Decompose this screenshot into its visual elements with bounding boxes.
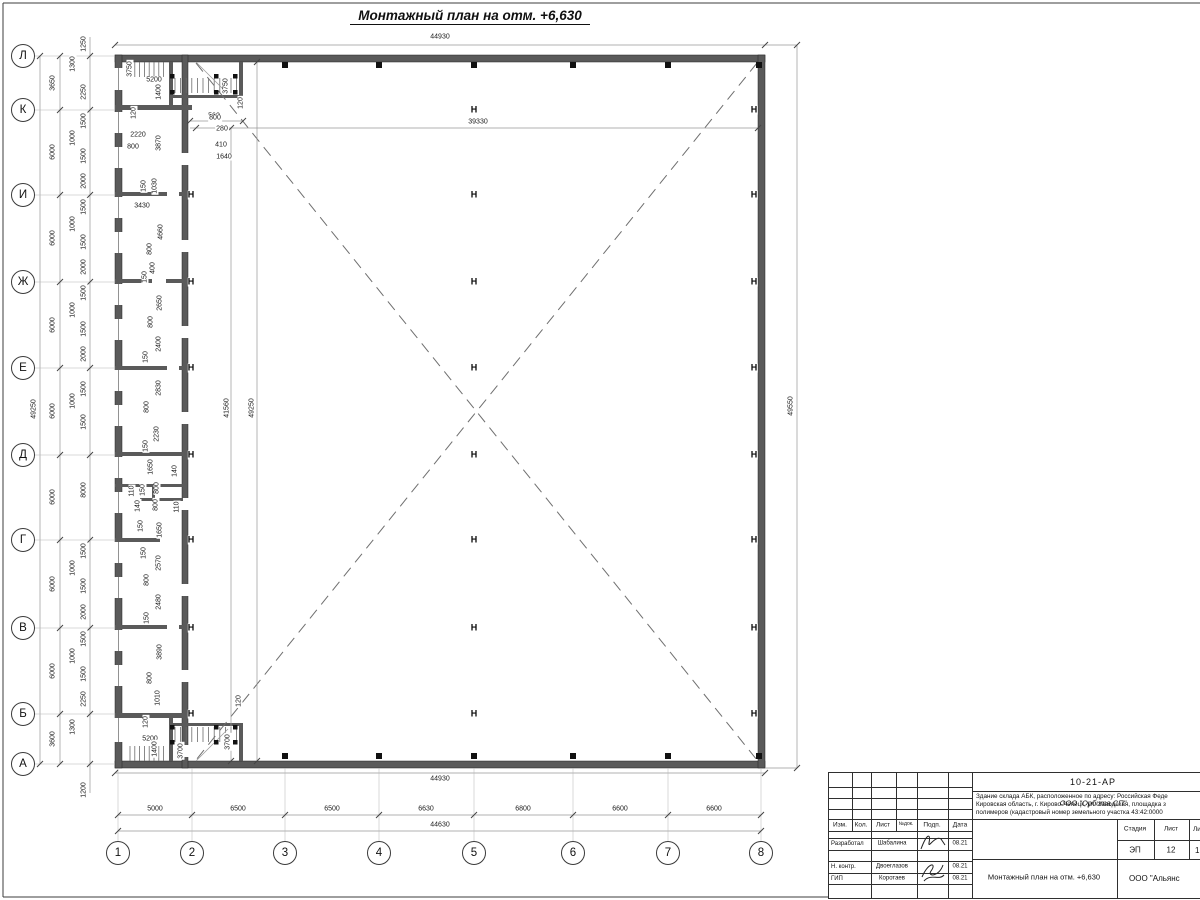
dim-label: 1030 (152, 177, 159, 195)
axis-circle-Л: Л (11, 44, 35, 68)
column-mark: Н (471, 624, 478, 633)
dim-label: 150 (143, 439, 150, 453)
title-block: 10-21-АР Здание склада АБК, расположенно… (828, 772, 1200, 899)
tb-header-izm: Изм. (833, 821, 847, 828)
column-mark: Н (751, 624, 758, 633)
dim-label: 2000 (81, 258, 88, 276)
dim-label: 1650 (148, 458, 155, 476)
axis-circle-Д: Д (11, 443, 35, 467)
tb-line (1117, 840, 1200, 841)
tb-date-gip: 08.21 (952, 876, 967, 883)
axis-circle-К: К (11, 98, 35, 122)
sheet-value: 12 (1167, 845, 1176, 854)
dim-label: 110 (174, 500, 181, 513)
column-mark: Н (751, 191, 758, 200)
column-mark: Н (751, 364, 758, 373)
column-mark: Н (471, 710, 478, 719)
dim-label: 6630 (417, 806, 435, 813)
dim-label: 150 (144, 611, 151, 625)
tb-date-developer: 08.21 (952, 841, 967, 848)
dim-label: 1000 (70, 392, 77, 410)
dim-label: 1300 (70, 55, 77, 73)
project-desc-line3: полимеров (кадастровый номер земельного … (976, 809, 1163, 816)
tb-line (829, 884, 972, 885)
dim-label: 1500 (81, 380, 88, 398)
column-mark: Н (471, 278, 478, 287)
tb-line (829, 838, 972, 839)
axis-circle-Г: Г (11, 528, 35, 552)
dim-label: 41560 (224, 397, 231, 418)
tb-line (972, 859, 1200, 860)
axis-circle-Ж: Ж (11, 270, 35, 294)
column-mark: Н (751, 451, 758, 460)
dim-label: 800 (144, 400, 151, 414)
column-mark: Н (188, 451, 195, 460)
column-mark: Н (188, 710, 195, 719)
tb-line (829, 819, 1200, 820)
sheets-label: Ли (1193, 826, 1200, 833)
dim-label: 1500 (81, 665, 88, 683)
dim-label: 3870 (156, 134, 163, 152)
tb-role-ncontrol: Н. контр. (831, 864, 856, 871)
dim-label: 1500 (81, 542, 88, 560)
axis-circle-Е: Е (11, 356, 35, 380)
dim-label: 3700 (178, 742, 185, 760)
dim-label: 120 (143, 715, 150, 729)
dim-label: 1200 (81, 781, 88, 799)
dim-label: 44630 (429, 822, 450, 829)
tb-line (852, 773, 853, 831)
dim-label: 2220 (129, 132, 147, 139)
tb-line (917, 773, 918, 898)
tb-header-podp: Подп. (923, 821, 940, 828)
dim-label: 3700 (225, 733, 232, 751)
dim-label: 800 (208, 115, 222, 122)
axis-circle-6: 6 (561, 841, 585, 865)
axis-circle-1: 1 (106, 841, 130, 865)
company-name: ООО "Альянс (1129, 874, 1180, 883)
dim-label: 1500 (81, 147, 88, 165)
dim-label: 1500 (81, 413, 88, 431)
dim-label: 1000 (70, 647, 77, 665)
dim-label: 280 (215, 126, 229, 133)
tb-line (1154, 819, 1155, 859)
tb-line (829, 787, 972, 788)
dim-label: 6000 (50, 488, 57, 506)
dim-label: 800 (147, 671, 154, 685)
dim-label: 1400 (156, 83, 163, 101)
dim-label: 150 (142, 270, 149, 284)
dim-label: 400 (150, 261, 157, 275)
column-mark: Н (751, 106, 758, 115)
tb-name-developer: Шабалина (878, 841, 907, 848)
axis-circle-3: 3 (273, 841, 297, 865)
dim-label: 3750 (127, 60, 134, 78)
axis-circle-В: В (11, 616, 35, 640)
column-mark: Н (188, 278, 195, 287)
tb-line (829, 831, 972, 832)
dim-label: 1000 (70, 215, 77, 233)
dim-label: 150 (140, 483, 147, 497)
dim-label: 6000 (50, 229, 57, 247)
tb-line (829, 798, 972, 799)
dim-label: 1250 (81, 35, 88, 53)
tb-date-ncontrol: 08.21 (952, 864, 967, 871)
dim-label: 150 (138, 519, 145, 533)
dim-label: 110 (129, 484, 136, 497)
dim-label: 3600 (50, 730, 57, 748)
dim-label: 6000 (50, 662, 57, 680)
drawing-title: Монтажный план на отм. +6,630 (350, 8, 589, 25)
drawing-title-wrap: Монтажный план на отм. +6,630 (240, 8, 700, 23)
tb-name-ncontrol: Двоеглазов (876, 864, 908, 871)
column-mark: Н (471, 451, 478, 460)
dim-label: 800 (153, 498, 160, 512)
bracing-diagonals (196, 63, 757, 760)
signature-gip (919, 857, 947, 883)
dim-label: 6500 (323, 806, 341, 813)
tb-line (829, 850, 972, 851)
dim-label: 1650 (157, 521, 164, 539)
tb-line (896, 773, 897, 831)
dim-label: 1000 (70, 129, 77, 147)
signature-developer (919, 831, 947, 853)
dim-label: 2400 (156, 335, 163, 353)
column-mark: Н (188, 624, 195, 633)
dim-label: 150 (141, 179, 148, 193)
dim-label: 6000 (50, 575, 57, 593)
dim-label: 120 (238, 96, 245, 110)
dim-label: 1500 (81, 320, 88, 338)
dim-label: 800 (126, 144, 140, 151)
window-door-openings (114, 68, 189, 757)
design-org: ООО "Орбита СП" (1060, 800, 1127, 809)
tb-header-ndok: №док. (899, 822, 914, 828)
axis-circle-4: 4 (367, 841, 391, 865)
dim-label: 1010 (155, 689, 162, 707)
dim-label: 2250 (81, 83, 88, 101)
dim-label: 5000 (146, 806, 164, 813)
tb-line (972, 791, 1200, 792)
dim-label: 140 (135, 499, 142, 513)
dim-label: 1500 (81, 577, 88, 595)
dim-label: 3650 (50, 74, 57, 92)
dim-label: 1500 (81, 630, 88, 648)
dim-label: 120 (131, 106, 138, 120)
column-mark: Н (188, 191, 195, 200)
dim-label: 2650 (157, 294, 164, 312)
axis-circle-7: 7 (656, 841, 680, 865)
dim-label: 1500 (81, 112, 88, 130)
dim-label: 1500 (81, 198, 88, 216)
tb-line (948, 773, 949, 898)
dim-label: 1000 (70, 559, 77, 577)
dim-label: 800 (148, 315, 155, 329)
document-code: 10-21-АР (1070, 777, 1116, 787)
stair-columns (170, 62, 671, 759)
dim-label: 150 (141, 546, 148, 560)
column-mark: Н (188, 536, 195, 545)
column-mark: Н (751, 536, 758, 545)
dim-label: 2570 (156, 554, 163, 572)
dim-label: 2000 (81, 345, 88, 363)
column-mark: Н (751, 278, 758, 287)
tb-line (829, 809, 972, 810)
tb-line (829, 861, 972, 862)
dim-label: 3430 (133, 203, 151, 210)
dim-label: 6000 (50, 316, 57, 334)
axis-circle-5: 5 (462, 841, 486, 865)
dim-label: 150 (143, 350, 150, 364)
dim-label: 2000 (81, 172, 88, 190)
column-mark: Н (751, 710, 758, 719)
column-mark: Н (471, 106, 478, 115)
column-mark: Н (188, 364, 195, 373)
dim-label: 800 (154, 481, 161, 495)
stage-value: ЭП (1129, 845, 1141, 854)
dim-label: 6500 (229, 806, 247, 813)
dim-label: 2230 (154, 425, 161, 443)
dim-label: 8000 (81, 481, 88, 499)
dim-label: 3890 (157, 643, 164, 661)
dim-label: 1500 (81, 284, 88, 302)
dim-label: 2250 (81, 690, 88, 708)
dim-label: 44930 (429, 776, 450, 783)
dim-label: 44930 (429, 34, 450, 41)
sheets-value: 1 (1195, 846, 1199, 855)
dim-label: 1640 (215, 154, 233, 161)
dim-label: 410 (214, 142, 228, 149)
drawing-sheet: Монтажный план на отм. +6,630 10-21-АР З… (0, 0, 1200, 900)
walls (115, 55, 765, 768)
tb-header-data: Дата (953, 821, 967, 828)
dim-label: 2480 (156, 593, 163, 611)
dim-label: 120 (236, 694, 243, 708)
tb-name-gip: Коротаев (879, 876, 905, 883)
stage-label: Стадия (1124, 825, 1146, 832)
dim-label: 6600 (611, 806, 629, 813)
axis-circle-8: 8 (749, 841, 773, 865)
dim-label: 800 (144, 573, 151, 587)
dim-label: 1400 (152, 740, 159, 758)
dim-label: 2000 (81, 603, 88, 621)
dim-label: 39330 (467, 119, 488, 126)
dim-label: 140 (172, 464, 179, 478)
dim-label: 2830 (156, 379, 163, 397)
dim-label: 800 (147, 242, 154, 256)
tb-line (1189, 819, 1190, 859)
tb-header-kol: Кол. (855, 821, 868, 828)
column-mark: Н (471, 536, 478, 545)
column-mark: Н (471, 191, 478, 200)
tb-role-gip: ГИП (831, 876, 843, 883)
axis-circle-И: И (11, 183, 35, 207)
axis-circle-2: 2 (180, 841, 204, 865)
dim-label: 6600 (705, 806, 723, 813)
dim-label: 6000 (50, 402, 57, 420)
axis-circle-А: А (11, 752, 35, 776)
dim-label: 49550 (788, 395, 795, 416)
column-mark: Н (471, 364, 478, 373)
dim-label: 4660 (158, 223, 165, 241)
tb-header-list: Лист (876, 821, 890, 828)
tb-line (871, 773, 872, 898)
dim-label: 1300 (70, 718, 77, 736)
dim-label: 49250 (31, 398, 38, 419)
tb-line (829, 873, 972, 874)
sheet-label: Лист (1164, 825, 1178, 832)
tb-role-developer: Разработал (831, 841, 864, 848)
plan-linework (0, 0, 1200, 900)
dim-label: 6000 (50, 143, 57, 161)
axis-circle-Б: Б (11, 702, 35, 726)
sheet-title: Монтажный план на отм. +6,630 (988, 874, 1100, 883)
dim-label: 1500 (81, 233, 88, 251)
dim-label: 6800 (514, 806, 532, 813)
dim-label: 49250 (249, 397, 256, 418)
dim-label: 3750 (223, 77, 230, 95)
dim-label: 1000 (70, 301, 77, 319)
